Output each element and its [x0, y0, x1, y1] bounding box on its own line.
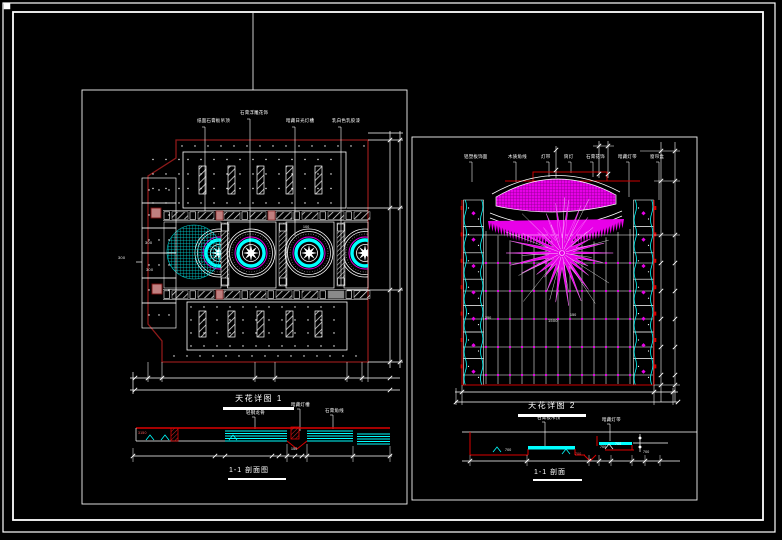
dimension-text: 150	[291, 448, 297, 452]
sheet-frame	[3, 3, 775, 532]
dimension-text: 1500	[548, 319, 558, 323]
leader-label: 筒灯	[564, 155, 573, 160]
leader-label: 灯带	[541, 155, 550, 160]
drawing2-section-underline	[533, 479, 582, 481]
dimension-text: 300	[145, 241, 152, 245]
drawing-linework	[0, 0, 782, 540]
leader-label: 乳白色乳胶漆	[332, 119, 360, 124]
cad-canvas: 纸面石膏板吊顶石膏浮雕花饰暗藏日光灯槽乳白色乳胶漆轻钢龙骨暗藏灯槽石膏角线300…	[0, 0, 782, 540]
leader-label: 纸面石膏板吊顶	[197, 119, 230, 124]
leader-label: 暗藏灯带	[602, 418, 621, 423]
drawing1-title-underline	[223, 407, 294, 410]
drawing1-section-title: 1-1 剖面图	[229, 467, 269, 474]
leader-label: 石膏板吊顶	[537, 416, 561, 421]
drawing2-ceiling-plan	[454, 141, 680, 405]
leader-label: 石膏浮雕花饰	[240, 111, 268, 116]
drawing1-section-underline	[228, 478, 286, 480]
dimension-text: 700	[505, 449, 511, 453]
dimension-text: 300	[146, 268, 153, 272]
dimension-text: 3150	[138, 432, 147, 436]
drawing2-section-title: 1-1 剖面	[534, 469, 566, 476]
leader-label: 暗藏日光灯槽	[286, 119, 314, 124]
dimension-text: 700	[615, 443, 621, 447]
dimension-text: 150	[570, 314, 576, 318]
dimension-text: 250	[485, 317, 491, 321]
drawing1-title: 天花详图 1	[222, 395, 296, 403]
leader-label: 铝塑板饰面	[464, 155, 488, 160]
drawing2-title-underline	[518, 414, 586, 417]
dimension-text: 700	[575, 453, 581, 457]
leader-label: 石膏角线	[325, 409, 344, 414]
drawing1-section-view	[131, 409, 392, 462]
dimension-text: 300	[118, 256, 125, 260]
dimension-text: 100	[303, 226, 309, 230]
leader-label: 轻钢龙骨	[246, 411, 265, 416]
drawing1-ceiling-plan	[130, 119, 403, 394]
leader-label: 石膏花饰	[586, 155, 605, 160]
drawing2-section-view	[462, 422, 697, 466]
leader-label: 木质角线	[508, 155, 527, 160]
leader-label: 暗藏灯带	[618, 155, 637, 160]
dimension-text: 700	[643, 451, 649, 455]
dimension-text: 700	[600, 446, 606, 450]
drawing2-title: 天花详图 2	[516, 402, 588, 410]
leader-label: 窗帘盒	[650, 155, 664, 160]
